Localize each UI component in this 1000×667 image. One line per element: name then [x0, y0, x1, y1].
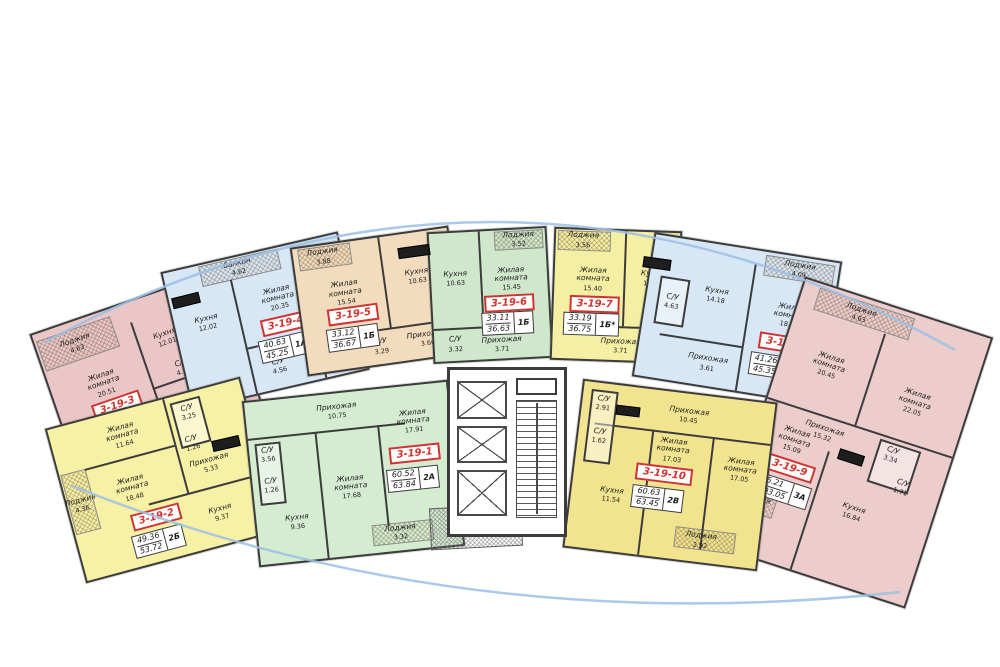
area-table: 33.1236.67 1Б [326, 323, 380, 353]
apartment-number: 3-19-2 [138, 507, 176, 527]
room-label-hallway: Прихожая10.75 [316, 401, 358, 422]
room-label-living: Жилая комната22.05 [888, 383, 942, 422]
apartment-number: 3-19-10 [642, 466, 686, 482]
room-label-loggia: Лоджия3.32 [384, 522, 417, 542]
area-table: 33.1136.63 1Б [481, 311, 534, 337]
vestibule-outline [516, 378, 557, 394]
room-label-kitchen: Кухня12.02 [194, 312, 221, 334]
room-label-loggia: Лоджия3.52 [502, 230, 534, 249]
wall-segment [149, 472, 264, 505]
stair-rail [536, 403, 538, 515]
area-table: 60.6363.45 2В [630, 484, 684, 513]
room-label-bathroom: С/У3.32 [448, 335, 463, 353]
room-label-bathroom: С/У1.26 [263, 476, 279, 495]
room-label-living: Жилая комната17.91 [394, 407, 433, 436]
room-label-bathroom: С/У1.62 [591, 427, 607, 446]
room-label-living: Жилая комната17.03 [648, 435, 699, 466]
room-label-living: Жилая комната18.48 [106, 470, 159, 507]
wall-segment [855, 334, 886, 425]
room-label-kitchen: Кухня14.18 [703, 285, 729, 306]
room-label-bathroom: С/У2.91 [595, 394, 611, 413]
elevator-shaft-icon [457, 426, 507, 464]
apartment-3-19-10[interactable]: С/У2.91 С/У1.62 Прихожая10.45 Кухня11.54… [562, 379, 777, 572]
room-label-living: Жилая комната20.45 [802, 346, 856, 385]
wall-segment [377, 237, 392, 327]
floor-plan: Лоджия4.63 Жилая комната20.51 Кухня12.01… [0, 0, 1000, 667]
apartment-3-19-6[interactable]: Лоджия3.52 Кухня10.63 Жилая комната15.45… [427, 226, 554, 364]
wall-segment [477, 231, 484, 326]
room-label-living: Жилая комната15.45 [493, 265, 530, 292]
room-label-hallway: Прихожая3.71 [481, 335, 522, 354]
apartment-number: 3-19-1 [396, 447, 433, 462]
room-label-kitchen: Кухня16.84 [839, 501, 867, 525]
wall-segment [84, 445, 174, 471]
room-label-kitchen: Кухня10.63 [404, 266, 430, 286]
room-label-loggia: Лоджия2.92 [684, 530, 717, 551]
apartment-number-badge: 3-19-10 [635, 462, 694, 486]
room-label-living: Жилая комната15.40 [569, 266, 618, 293]
room-label-kitchen: Кухня10.63 [443, 270, 467, 288]
room-label-living: Жилая комната11.64 [96, 417, 149, 454]
apartment-number: 3-19-5 [334, 307, 371, 323]
room-label-loggia: Лоджия3.56 [567, 231, 599, 249]
wall-segment [248, 422, 406, 441]
area-table: 33.1936.75 1Б* [563, 312, 620, 337]
room-label-kitchen: Кухня9.37 [207, 502, 234, 525]
room-label-hallway: Прихожая5.33 [188, 451, 231, 478]
room-label-hallway: Прихожая10.45 [668, 404, 710, 426]
room-label-bathroom: С/У4.63 [663, 292, 680, 311]
elevator-shaft-icon [457, 470, 507, 516]
apartment-number: 3-19-9 [771, 458, 809, 480]
room-label-hallway: Прихожая3.61 [686, 352, 728, 375]
apartment-number-badge: 3-19-6 [484, 293, 535, 313]
area-table: 60.5263.84 2А [386, 465, 440, 493]
room-label-kitchen: Кухня11.54 [599, 485, 625, 505]
room-label-bathroom: С/У3.56 [260, 445, 276, 464]
elevator-shaft-icon [457, 381, 507, 419]
stair-elevator-core [447, 367, 567, 537]
wall-segment [622, 231, 627, 326]
wall-segment [659, 333, 742, 348]
room-label-living: Жилая комната17.68 [326, 472, 376, 502]
room-label-kitchen: Кухня9.36 [285, 512, 310, 532]
room-label-living: Жилая комната17.05 [722, 456, 758, 485]
apartment-number: 3-19-7 [576, 298, 613, 310]
apartment-number: 3-19-6 [491, 297, 528, 310]
apartment-number-badge: 3-19-7 [569, 294, 620, 313]
apartment-number-badge: 3-19-1 [389, 443, 441, 465]
